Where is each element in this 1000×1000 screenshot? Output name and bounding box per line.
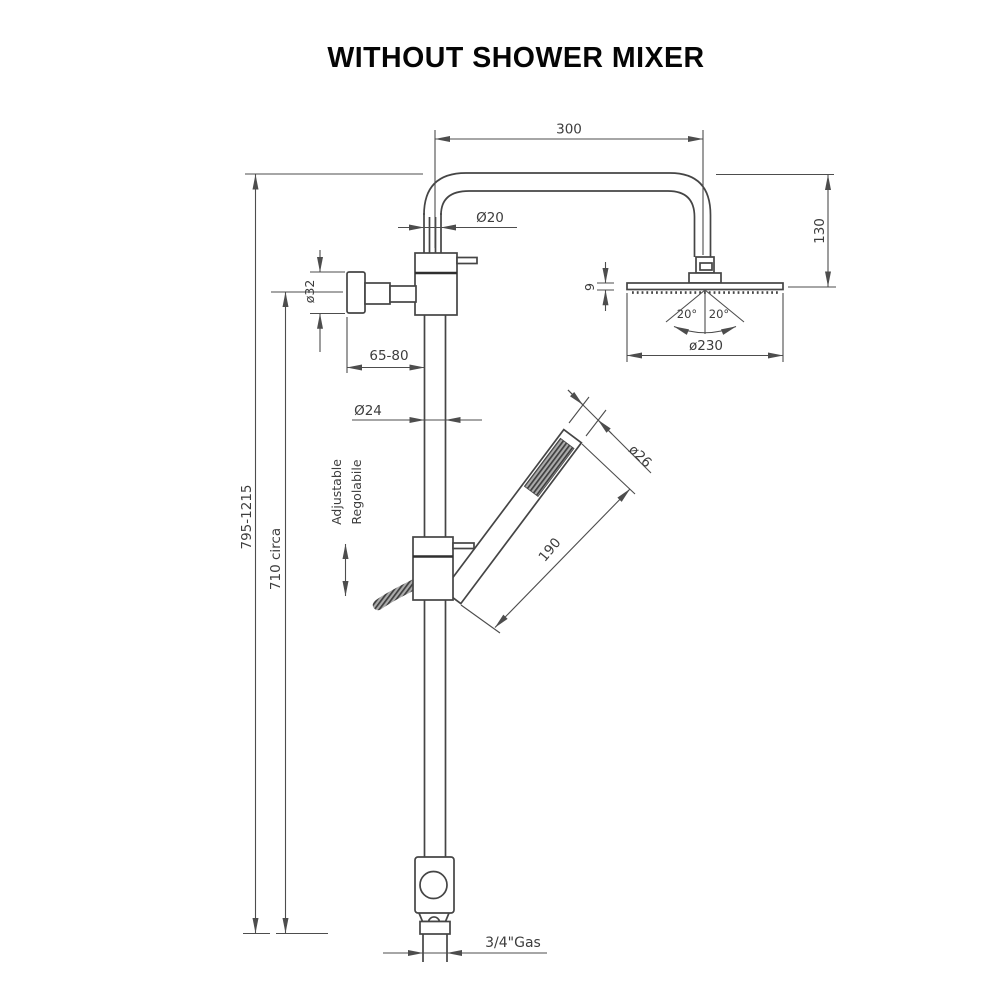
inlet-pipe <box>423 934 447 962</box>
knob-plate <box>347 272 365 313</box>
shower-system-outline <box>347 173 783 962</box>
shower-arm <box>424 173 711 257</box>
dimension-lines <box>243 130 836 953</box>
label-head-thickness: 9 <box>582 283 597 291</box>
shower-hose <box>378 583 417 605</box>
label-bracket-height: 710 circa <box>268 528 284 590</box>
slider-pin <box>453 543 474 549</box>
diverter-knob <box>420 872 447 899</box>
shower-head-disc <box>627 283 783 290</box>
drawing-title: WITHOUT SHOWER MIXER <box>327 42 704 74</box>
drawing-sheet: WITHOUT SHOWER MIXER 300 Ø20 130 9 20° 2… <box>0 0 1000 1000</box>
diverter-body <box>415 857 454 934</box>
hand-shower-grip <box>524 438 574 496</box>
label-adjustable-en: Adjustable <box>329 459 344 525</box>
shower-head-bracket <box>689 257 721 283</box>
label-wall-distance: 65-80 <box>369 348 408 364</box>
label-head-drop: 130 <box>812 218 828 244</box>
dim-65-80-lines <box>347 317 425 373</box>
label-inlet-thread: 3/4"Gas <box>485 935 541 951</box>
label-arm-pipe-diameter: Ø20 <box>476 210 504 226</box>
label-arm-length: 300 <box>556 122 582 138</box>
top-body-pin <box>457 258 477 264</box>
label-spray-angle-left: 20° <box>677 307 697 321</box>
riser-top-body <box>415 253 477 315</box>
knob-stem-2 <box>390 286 416 302</box>
hand-shower <box>443 430 581 604</box>
label-adjustable-it: Regolabile <box>349 459 364 524</box>
technical-drawing: WITHOUT SHOWER MIXER 300 Ø20 130 9 20° 2… <box>0 0 1000 1000</box>
label-handshower-diameter: ø26 <box>625 442 654 471</box>
dim-9-lines <box>597 262 614 311</box>
label-spray-angle-right: 20° <box>709 307 729 321</box>
label-total-height: 795-1215 <box>239 485 255 550</box>
label-riser-diameter: Ø24 <box>354 403 382 419</box>
inlet-connector <box>420 922 450 935</box>
dim-710-circa-lines <box>271 292 343 934</box>
dim-300-lines <box>435 130 703 255</box>
wall-bracket-knob <box>347 272 416 313</box>
label-head-diameter: ø230 <box>689 338 723 354</box>
label-knob-diameter: ø32 <box>302 280 317 304</box>
knob-stem <box>365 283 390 304</box>
